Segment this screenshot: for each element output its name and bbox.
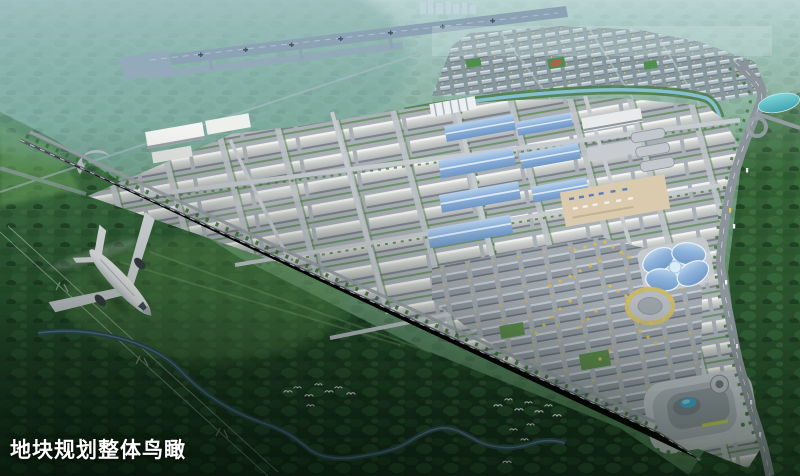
caption: 地块规划整体鸟瞰 [10, 434, 186, 464]
scene-canvas [0, 0, 800, 476]
aerial-render-image: 地块规划整体鸟瞰 [0, 0, 800, 476]
atmosphere-overlays [0, 0, 800, 476]
